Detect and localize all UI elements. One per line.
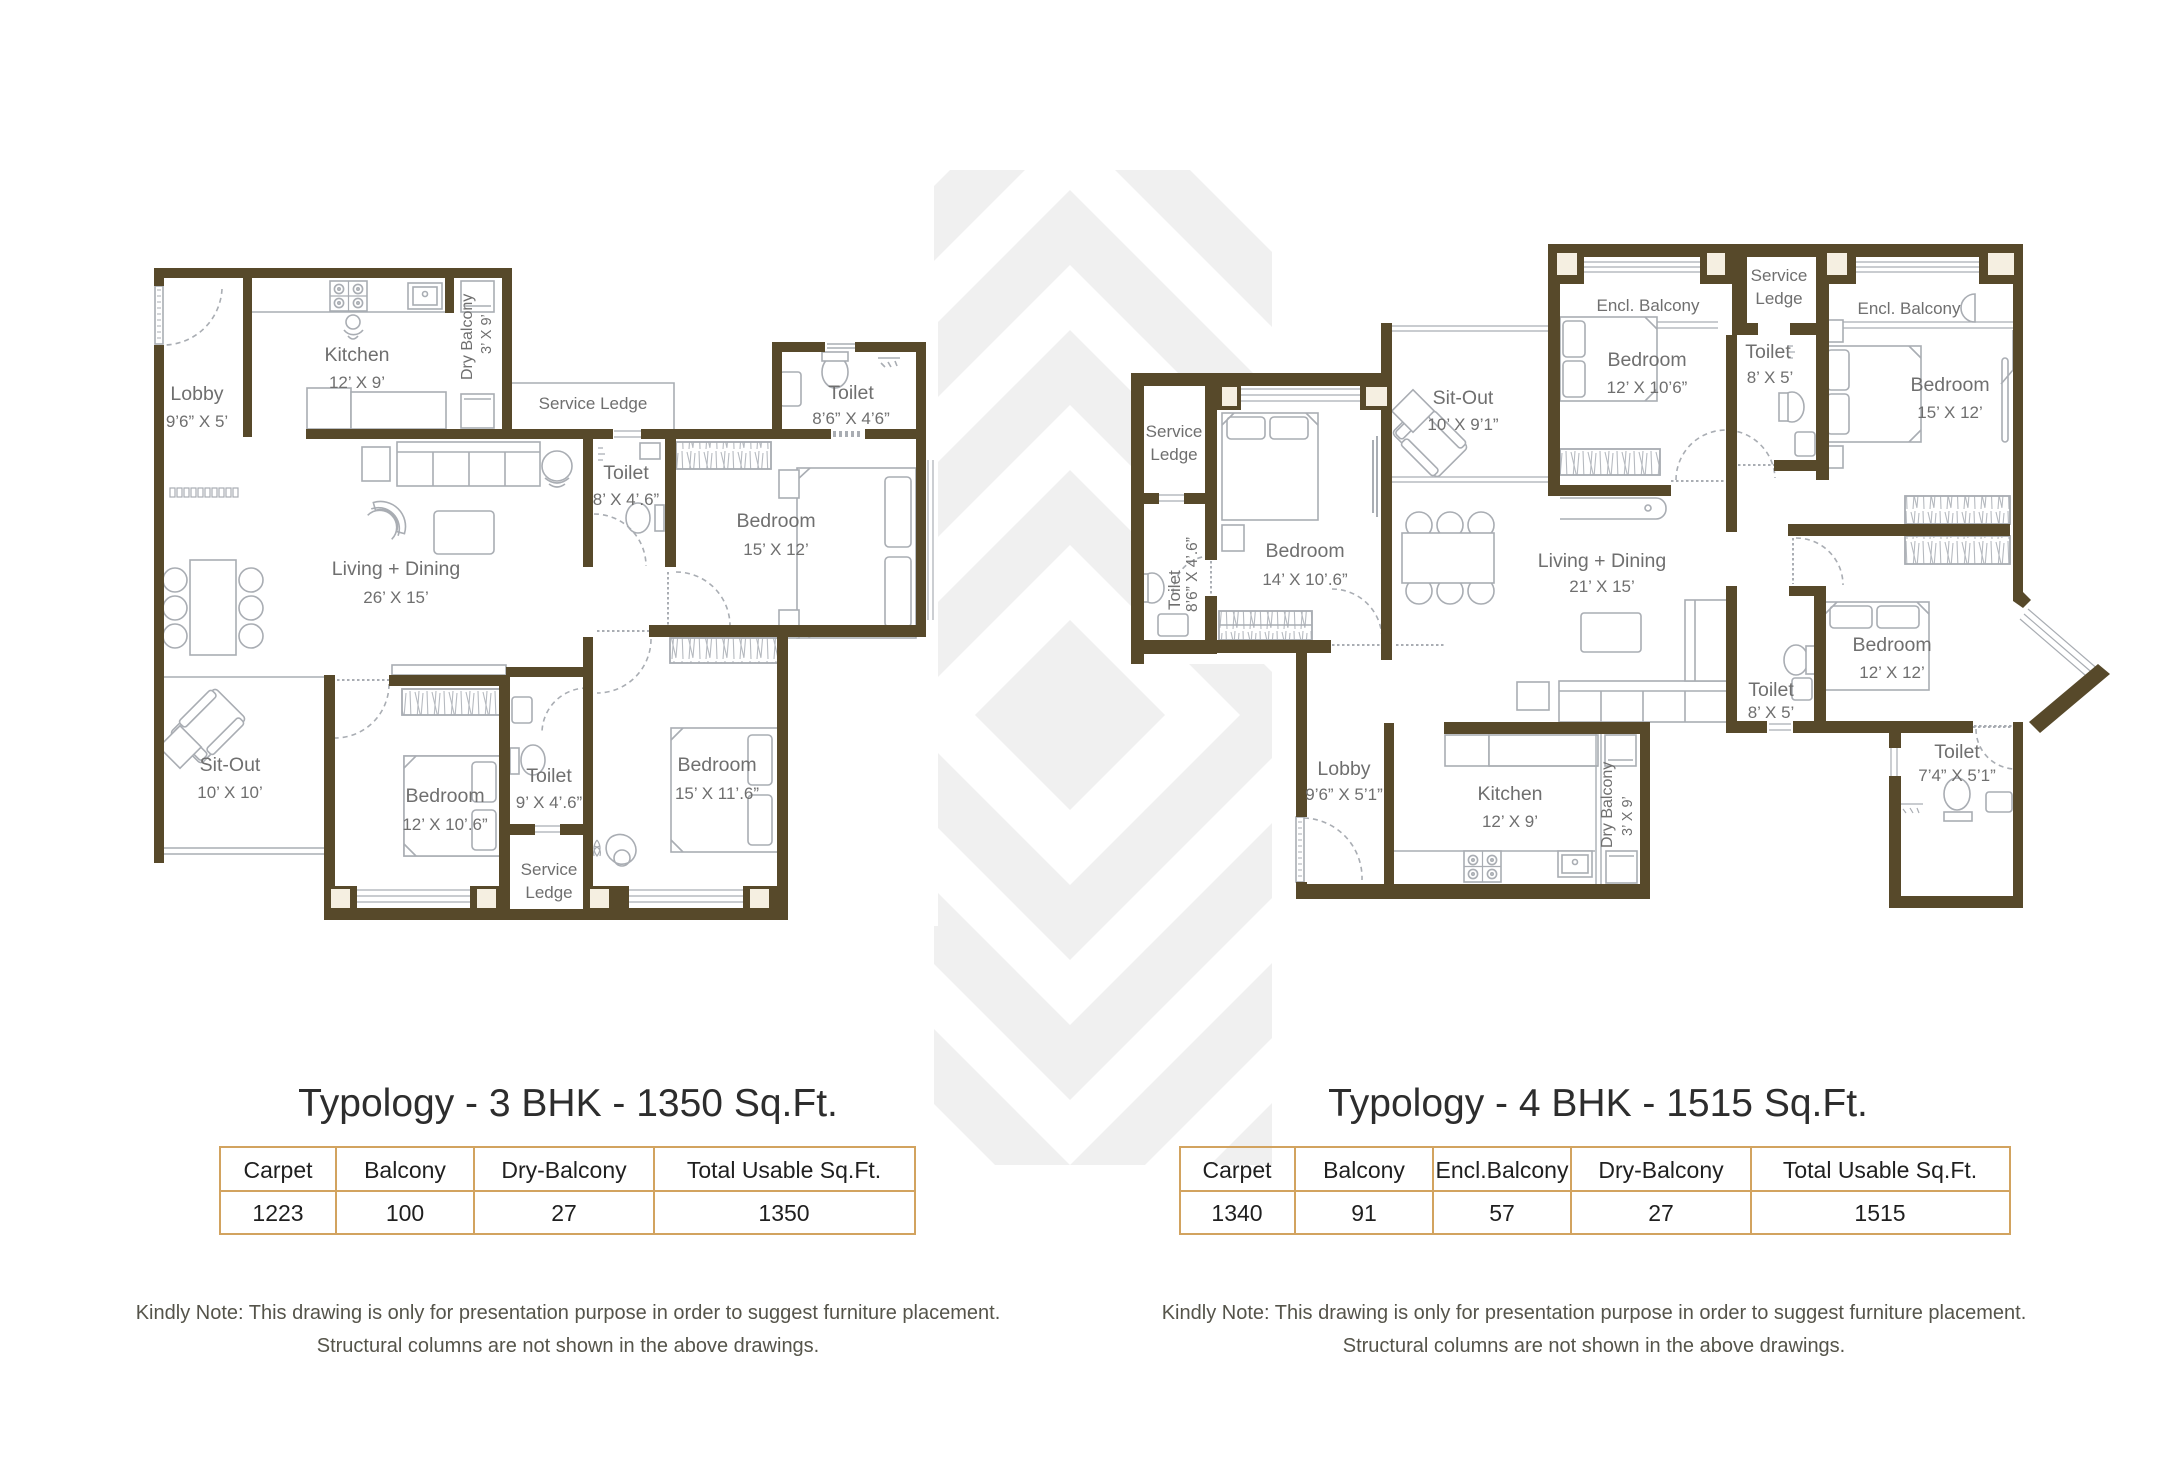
svg-text:Kitchen: Kitchen <box>1477 783 1542 805</box>
svg-text:Toilet: Toilet <box>828 382 874 404</box>
svg-text:Service Ledge: Service Ledge <box>539 394 648 413</box>
svg-text:Balcony: Balcony <box>1323 1157 1405 1183</box>
svg-text:Dry-Balcony: Dry-Balcony <box>1598 1157 1724 1183</box>
svg-text:27: 27 <box>1648 1200 1674 1226</box>
svg-text:9’6” X 5’1”: 9’6” X 5’1” <box>1305 785 1383 804</box>
svg-text:8’ X 5’: 8’ X 5’ <box>1748 703 1795 722</box>
svg-text:Kitchen: Kitchen <box>324 344 389 366</box>
svg-text:Bedroom: Bedroom <box>736 510 815 532</box>
svg-text:26’ X 15’: 26’ X 15’ <box>363 588 429 607</box>
svg-text:Bedroom: Bedroom <box>677 754 756 776</box>
svg-text:Sit-Out: Sit-Out <box>1433 387 1494 409</box>
svg-text:Living + Dining: Living + Dining <box>1538 550 1666 572</box>
svg-text:7’4” X 5’1”: 7’4” X 5’1” <box>1918 766 1996 785</box>
svg-text:27: 27 <box>551 1200 577 1226</box>
svg-text:Typology - 4 BHK - 1515 Sq.Ft.: Typology - 4 BHK - 1515 Sq.Ft. <box>1328 1082 1868 1125</box>
svg-text:8’ X 5’: 8’ X 5’ <box>1747 368 1794 387</box>
svg-text:8’6” X 4’.6”: 8’6” X 4’.6” <box>1184 537 1201 612</box>
svg-text:Total Usable Sq.Ft.: Total Usable Sq.Ft. <box>687 1157 881 1183</box>
svg-text:Toilet: Toilet <box>526 765 572 787</box>
svg-text:Sit-Out: Sit-Out <box>200 754 261 776</box>
svg-text:Carpet: Carpet <box>243 1157 313 1183</box>
svg-text:15’ X 12’: 15’ X 12’ <box>743 540 809 559</box>
svg-text:100: 100 <box>386 1200 424 1226</box>
svg-text:Living + Dining: Living + Dining <box>332 558 460 580</box>
svg-text:14’ X 10’.6”: 14’ X 10’.6” <box>1262 570 1348 589</box>
svg-text:Lobby: Lobby <box>1317 758 1370 780</box>
svg-text:Kindly Note: This drawing is o: Kindly Note: This drawing is only for pr… <box>136 1302 1001 1324</box>
svg-text:Ledge: Ledge <box>525 883 572 902</box>
svg-text:Service: Service <box>1751 266 1808 285</box>
svg-text:12’ X 12’: 12’ X 12’ <box>1859 663 1925 682</box>
svg-text:Typology - 3 BHK - 1350 Sq.Ft.: Typology - 3 BHK - 1350 Sq.Ft. <box>298 1082 838 1125</box>
svg-text:Toilet: Toilet <box>1745 341 1791 363</box>
svg-text:Structural columns are not sho: Structural columns are not shown in the … <box>1343 1335 1846 1357</box>
svg-text:Service: Service <box>1146 422 1203 441</box>
svg-text:3’ X 9’: 3’ X 9’ <box>479 314 495 354</box>
svg-text:Structural columns are not sho: Structural columns are not shown in the … <box>317 1335 820 1357</box>
svg-text:12’ X 10’.6”: 12’ X 10’.6” <box>402 815 488 834</box>
svg-text:3’ X 9’: 3’ X 9’ <box>1620 796 1636 836</box>
svg-text:Dry Balcony: Dry Balcony <box>1599 762 1616 848</box>
svg-text:21’ X 15’: 21’ X 15’ <box>1569 577 1635 596</box>
svg-text:Total Usable Sq.Ft.: Total Usable Sq.Ft. <box>1783 1157 1977 1183</box>
svg-text:Toilet: Toilet <box>1165 570 1184 610</box>
svg-text:Encl. Balcony: Encl. Balcony <box>1858 299 1961 318</box>
svg-text:Ledge: Ledge <box>1150 445 1197 464</box>
svg-text:15’ X 12’: 15’ X 12’ <box>1917 403 1983 422</box>
svg-text:1350: 1350 <box>758 1200 809 1226</box>
svg-text:Bedroom: Bedroom <box>1607 349 1686 371</box>
svg-text:Toilet: Toilet <box>603 462 649 484</box>
svg-text:Carpet: Carpet <box>1202 1157 1272 1183</box>
svg-text:Balcony: Balcony <box>364 1157 446 1183</box>
svg-text:1223: 1223 <box>252 1200 303 1226</box>
svg-text:Toilet: Toilet <box>1748 679 1794 701</box>
svg-text:Ledge: Ledge <box>1755 289 1802 308</box>
svg-text:9’6” X 5’: 9’6” X 5’ <box>166 412 228 431</box>
svg-text:8’ X 4’.6”: 8’ X 4’.6” <box>593 490 660 509</box>
svg-text:10’ X 9’1”: 10’ X 9’1” <box>1427 415 1499 434</box>
svg-text:12’ X 9’: 12’ X 9’ <box>1482 812 1538 831</box>
svg-text:Encl.Balcony: Encl.Balcony <box>1436 1157 1569 1183</box>
svg-text:Bedroom: Bedroom <box>1265 540 1344 562</box>
svg-text:Service: Service <box>521 860 578 879</box>
svg-text:Dry-Balcony: Dry-Balcony <box>501 1157 627 1183</box>
svg-text:Encl. Balcony: Encl. Balcony <box>1597 296 1700 315</box>
svg-text:Dry Balcony: Dry Balcony <box>459 294 476 380</box>
svg-text:9’ X 4’.6”: 9’ X 4’.6” <box>516 793 583 812</box>
svg-text:Kindly Note: This drawing is o: Kindly Note: This drawing is only for pr… <box>1162 1302 2027 1324</box>
svg-text:91: 91 <box>1351 1200 1377 1226</box>
svg-text:Bedroom: Bedroom <box>1910 374 1989 396</box>
svg-text:57: 57 <box>1489 1200 1515 1226</box>
svg-text:Bedroom: Bedroom <box>1852 634 1931 656</box>
svg-text:12’ X 10’6”: 12’ X 10’6” <box>1607 378 1688 397</box>
svg-text:Toilet: Toilet <box>1934 741 1980 763</box>
svg-text:1340: 1340 <box>1211 1200 1262 1226</box>
svg-text:12’ X 9’: 12’ X 9’ <box>329 373 385 392</box>
svg-text:1515: 1515 <box>1854 1200 1905 1226</box>
svg-text:10’ X 10’: 10’ X 10’ <box>197 783 263 802</box>
svg-text:Bedroom: Bedroom <box>405 785 484 807</box>
svg-text:8’6” X 4’6”: 8’6” X 4’6” <box>812 409 890 428</box>
svg-text:15’ X 11’.6”: 15’ X 11’.6” <box>675 784 759 803</box>
svg-text:Lobby: Lobby <box>170 383 223 405</box>
